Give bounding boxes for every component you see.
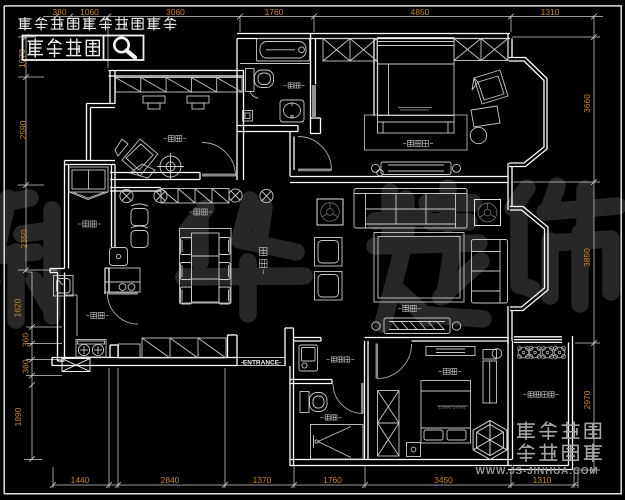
svg-text:2970: 2970 — [582, 390, 592, 409]
svg-text:1760: 1760 — [265, 7, 284, 17]
svg-text:2590: 2590 — [18, 120, 28, 139]
svg-text:-ENTRANCE-: -ENTRANCE- — [241, 359, 281, 366]
svg-text:360: 360 — [21, 333, 31, 347]
svg-text:4850: 4850 — [411, 7, 430, 17]
svg-text:WWW.JS-JINHUA.COM: WWW.JS-JINHUA.COM — [475, 466, 598, 477]
svg-text:(1800*2000): (1800*2000) — [439, 405, 466, 411]
svg-text:3060: 3060 — [166, 7, 185, 17]
svg-text:1440: 1440 — [71, 475, 90, 485]
svg-text:1890: 1890 — [13, 407, 23, 426]
svg-text:3450: 3450 — [434, 475, 453, 485]
svg-text:1310: 1310 — [541, 7, 560, 17]
svg-text:1620: 1620 — [13, 298, 23, 317]
svg-text:1060: 1060 — [80, 7, 99, 17]
svg-text:2840: 2840 — [161, 475, 180, 485]
svg-text:360: 360 — [21, 359, 31, 373]
svg-text:1370: 1370 — [253, 475, 272, 485]
svg-text:2350: 2350 — [19, 229, 29, 248]
svg-text:3850: 3850 — [582, 248, 592, 267]
svg-text:3660: 3660 — [582, 94, 592, 113]
svg-text:1760: 1760 — [323, 475, 342, 485]
svg-text:380: 380 — [53, 7, 67, 17]
